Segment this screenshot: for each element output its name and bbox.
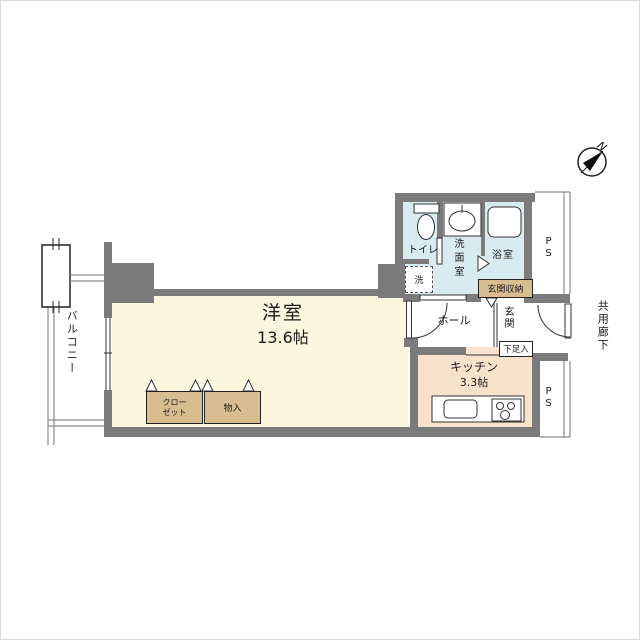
main-room-size: 13.6帖	[243, 328, 323, 347]
compass-needle-icon	[583, 151, 603, 171]
wall	[437, 202, 443, 238]
compass-north-label: N	[594, 139, 608, 154]
wall	[403, 259, 429, 264]
storage-label: 物入	[223, 401, 241, 414]
ps-top-label: PS	[542, 236, 554, 266]
compass-axis	[581, 151, 603, 173]
storage-door-mark	[486, 298, 497, 307]
wall	[104, 242, 112, 263]
shoe-box: 下足入	[499, 341, 533, 357]
entrance-door-leaf	[565, 304, 571, 338]
wall	[395, 193, 535, 202]
wall	[532, 353, 540, 427]
entrance-storage-box: 玄関収納	[478, 279, 533, 298]
storage-box: 物入	[204, 391, 261, 424]
washer-space-box: 洗	[405, 266, 433, 293]
floor-plan: N 玄関収納 下足入 洗 クローゼット 物入 洋室 13.6帖 キッチン 3.3…	[0, 0, 640, 640]
wall	[403, 294, 420, 302]
wall	[378, 264, 405, 298]
main-room-name: 洋室	[243, 302, 323, 325]
wall	[418, 347, 466, 355]
closet-label: クローゼット	[160, 398, 190, 418]
bathroom-label: 浴室	[483, 250, 523, 262]
hall-label: ホール	[428, 314, 480, 327]
entrance-label: 玄関	[501, 306, 513, 342]
compass: N	[578, 139, 609, 176]
toilet-label: トイレ	[402, 245, 444, 257]
wall	[481, 202, 485, 256]
entrance-door-arc	[538, 305, 570, 337]
wall	[410, 345, 418, 427]
compass-circle	[578, 148, 606, 176]
balcony-partition-board	[42, 245, 70, 307]
kitchen-name: キッチン	[434, 360, 514, 374]
entrance-storage-label: 玄関収納	[487, 282, 523, 295]
washer-space-label: 洗	[414, 273, 423, 286]
closet-box: クローゼット	[146, 391, 203, 424]
washroom-label: 洗面室	[451, 238, 463, 300]
shoe-box-label: 下足入	[503, 343, 529, 355]
balcony-label: バルコニー	[65, 310, 78, 398]
wall	[112, 263, 154, 303]
common-corridor-label: 共用廊下	[596, 300, 609, 370]
wall	[532, 353, 568, 361]
kitchen-size: 3.3帖	[434, 376, 514, 389]
ps-bottom-label: PS	[542, 386, 554, 416]
wall	[104, 263, 112, 318]
bathroom-floor	[483, 202, 524, 282]
balcony-window	[104, 318, 112, 390]
wall	[104, 427, 540, 437]
wall	[150, 289, 382, 296]
